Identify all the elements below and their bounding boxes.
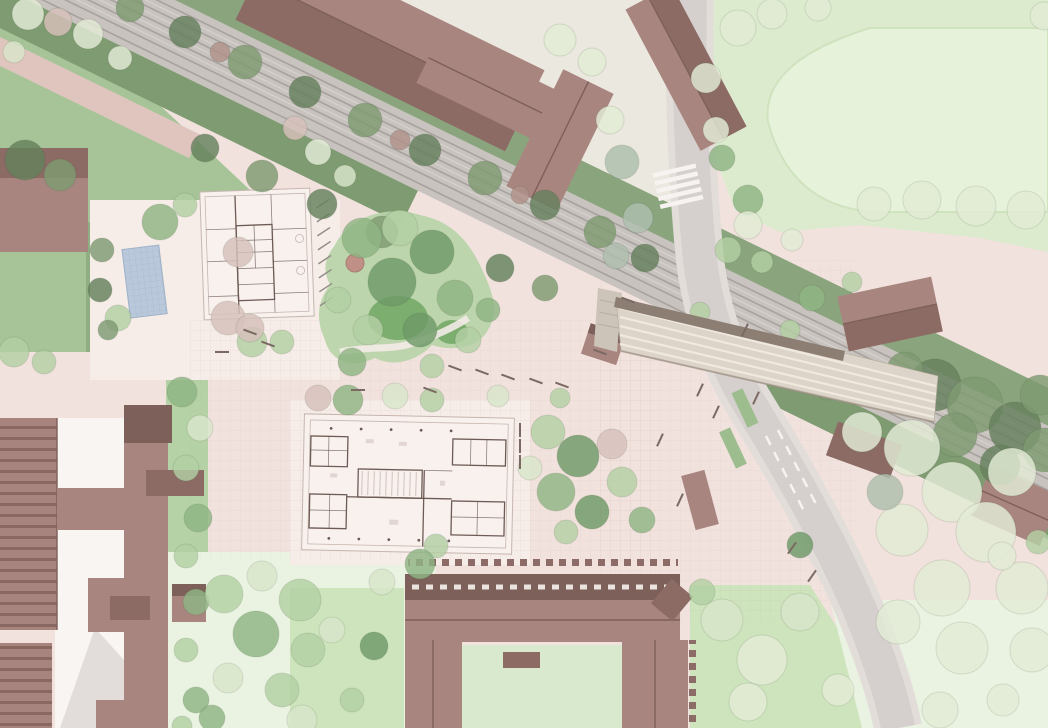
tree xyxy=(486,254,514,282)
tree xyxy=(88,278,112,302)
tree xyxy=(1026,530,1048,554)
tree xyxy=(319,617,345,643)
wing-mid-cluster-dark xyxy=(110,596,150,620)
tree xyxy=(781,593,819,631)
tree xyxy=(403,313,437,347)
tree xyxy=(98,320,118,340)
water-feature xyxy=(122,245,167,318)
tree xyxy=(876,600,920,644)
tree xyxy=(0,337,29,367)
north-wing-roof xyxy=(405,600,680,642)
tree xyxy=(213,663,243,693)
tree xyxy=(32,350,56,374)
tree xyxy=(988,542,1016,570)
tree xyxy=(734,211,762,239)
tree xyxy=(876,504,928,556)
tree xyxy=(307,189,337,219)
courtyard-lawn xyxy=(462,645,622,728)
connector-building xyxy=(57,488,124,530)
tree xyxy=(437,280,473,316)
tree xyxy=(557,435,599,477)
tree xyxy=(305,139,331,165)
tree xyxy=(12,0,44,30)
tree xyxy=(805,0,831,21)
tree xyxy=(223,237,253,267)
tree xyxy=(174,638,198,662)
tree xyxy=(476,298,500,322)
tree xyxy=(903,181,941,219)
tree xyxy=(822,674,854,706)
tree xyxy=(340,688,364,712)
tree xyxy=(108,46,132,70)
tree xyxy=(173,455,199,481)
tree xyxy=(554,520,578,544)
tree xyxy=(751,251,773,273)
tree xyxy=(709,145,735,171)
tree xyxy=(3,41,25,63)
tree xyxy=(988,448,1036,496)
tree xyxy=(246,160,278,192)
tree xyxy=(720,10,756,46)
crenellation-row xyxy=(408,556,678,572)
tree xyxy=(169,16,201,48)
tree xyxy=(90,238,114,262)
tree xyxy=(174,544,198,568)
tree xyxy=(382,383,408,409)
tree xyxy=(420,354,444,378)
tree xyxy=(270,330,294,354)
tree xyxy=(715,237,741,263)
tree xyxy=(884,420,940,476)
tree xyxy=(603,243,629,269)
tree xyxy=(537,473,575,511)
tree xyxy=(1007,191,1045,229)
courtyard-pavilion xyxy=(503,652,540,668)
tree xyxy=(348,103,382,137)
wing-north-cap xyxy=(124,405,172,443)
tree xyxy=(578,48,606,76)
tree xyxy=(629,507,655,533)
ribbed-building-a xyxy=(0,418,57,630)
tree xyxy=(73,19,103,49)
tree xyxy=(842,272,862,292)
tree xyxy=(857,187,891,221)
tree xyxy=(167,377,197,407)
tree xyxy=(410,230,454,274)
tree xyxy=(205,575,243,613)
tree xyxy=(233,611,279,657)
wing-south-cluster xyxy=(96,700,141,728)
tree xyxy=(382,210,418,246)
tree xyxy=(325,287,351,313)
tree xyxy=(799,285,825,311)
tree xyxy=(787,532,813,558)
tree xyxy=(781,229,803,251)
tree xyxy=(405,549,435,579)
tree xyxy=(518,456,542,480)
tree xyxy=(369,569,395,595)
tree xyxy=(44,8,72,36)
tree xyxy=(737,635,787,685)
tree xyxy=(531,415,565,449)
tree xyxy=(353,315,383,345)
tree xyxy=(631,244,659,272)
tree xyxy=(914,560,970,616)
tree xyxy=(691,63,721,93)
tree xyxy=(842,412,882,452)
tree xyxy=(289,76,321,108)
tree xyxy=(532,275,558,301)
site-plan-svg xyxy=(0,0,1048,728)
sports-field-inner xyxy=(767,28,1048,212)
tree xyxy=(291,633,325,667)
tree xyxy=(703,117,729,143)
tree xyxy=(247,561,277,591)
tree xyxy=(511,186,529,204)
tree xyxy=(701,599,743,641)
tree xyxy=(605,145,639,179)
tree xyxy=(956,186,996,226)
site-plan-image xyxy=(0,0,1048,728)
tree xyxy=(607,467,637,497)
tree xyxy=(922,692,958,728)
ribbed-building-b xyxy=(0,643,52,728)
tree xyxy=(368,258,416,306)
tree xyxy=(283,116,307,140)
tree xyxy=(936,622,988,674)
new-building-floor-plan-central xyxy=(302,414,515,554)
tree xyxy=(584,216,616,248)
tree xyxy=(530,190,560,220)
tree xyxy=(184,504,212,532)
tree xyxy=(334,165,356,187)
tree xyxy=(210,42,230,62)
crenellation-east xyxy=(688,640,700,728)
tree xyxy=(1010,628,1048,672)
tree xyxy=(487,385,509,407)
tree xyxy=(338,348,366,376)
tree xyxy=(390,130,410,150)
tree xyxy=(867,474,903,510)
tree xyxy=(596,106,624,134)
tree xyxy=(173,193,197,217)
tree xyxy=(575,495,609,529)
tree xyxy=(5,140,45,180)
tree xyxy=(191,134,219,162)
tree xyxy=(623,203,653,233)
tree xyxy=(342,218,382,258)
tree xyxy=(305,385,331,411)
tree xyxy=(729,683,767,721)
tree xyxy=(265,673,299,707)
tree xyxy=(987,684,1019,716)
tree xyxy=(455,327,481,353)
tree xyxy=(409,134,441,166)
tree xyxy=(597,429,627,459)
tree xyxy=(550,388,570,408)
tree xyxy=(689,579,715,605)
tree xyxy=(279,579,321,621)
courtyard-building xyxy=(405,556,700,728)
tree xyxy=(142,204,178,240)
tree xyxy=(187,415,213,441)
tree xyxy=(228,45,262,79)
tree xyxy=(44,159,76,191)
tree xyxy=(360,632,388,660)
tree xyxy=(544,24,576,56)
tree xyxy=(236,314,264,342)
tree xyxy=(757,0,787,29)
tree xyxy=(468,161,502,195)
tree xyxy=(199,705,225,728)
